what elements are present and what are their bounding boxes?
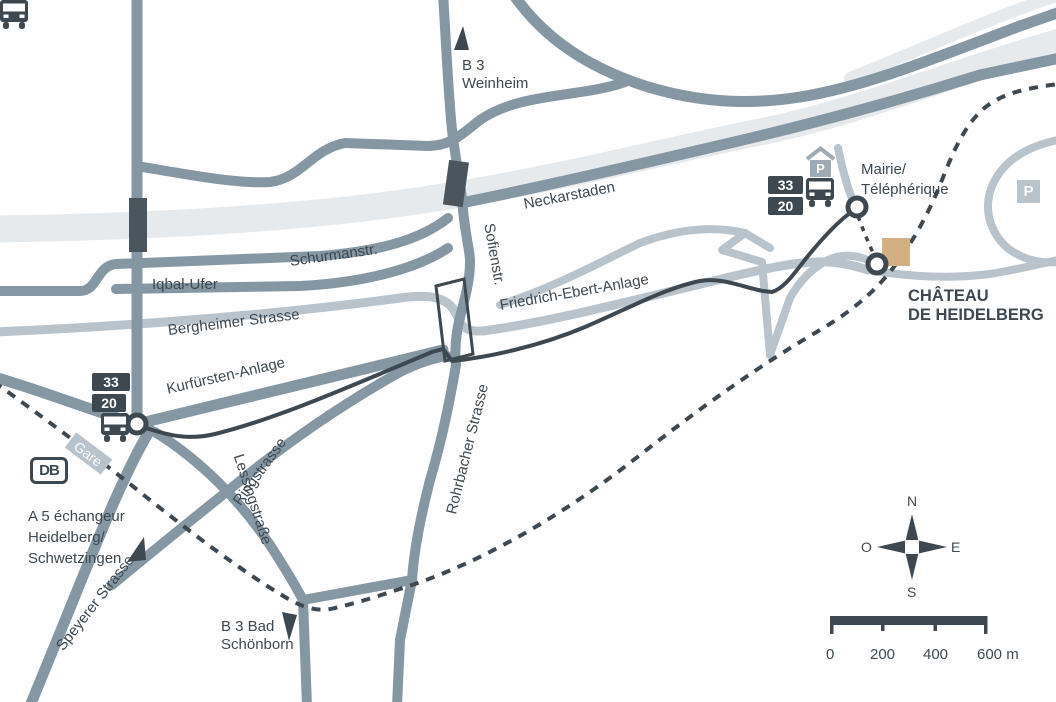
poi-chateau-line1: CHÂTEAU <box>908 287 1044 306</box>
scale-label-400: 400 <box>923 646 948 663</box>
poi-label-chateau: CHÂTEAU DE HEIDELBERG <box>908 287 1044 325</box>
bus-line-badge-33-mairie: 33 <box>768 176 803 194</box>
road-rohrbacher <box>397 365 456 702</box>
scale-bar <box>825 614 995 639</box>
roadsign-b3-weinheim-line1: B 3 <box>462 57 528 75</box>
scale-label-0: 0 <box>826 646 834 663</box>
roadsign-a5-line2: Heidelberg/ <box>28 527 125 548</box>
bus-line-badge-33-gare: 33 <box>92 373 130 391</box>
roadsign-a5-line3: Schwetzingen <box>28 548 125 569</box>
road-bergheimer-friedrich-ebert <box>0 262 868 332</box>
road-mairie-access <box>838 148 854 203</box>
bus-line-badge-20-mairie: 20 <box>768 197 803 215</box>
heidelberg-access-map: Iqbal-Ufer Schurmanstr. Bergheimer Stras… <box>0 0 1056 702</box>
poi-label-mairie-telepherique: Mairie/ Téléphérique <box>861 160 949 200</box>
db-logo: DB <box>30 457 68 484</box>
roadsign-a5-echangeur: A 5 échangeur Heidelberg/ Schwetzingen <box>28 506 125 569</box>
poi-mairie-line2: Téléphérique <box>861 180 949 200</box>
roadsign-a5-line1: A 5 échangeur <box>28 506 125 527</box>
bus-icon <box>0 0 28 29</box>
compass-north-label: N <box>907 493 917 509</box>
bridge-west <box>129 198 147 252</box>
parking-east-icon: P <box>1017 180 1040 203</box>
bus-icon-gare <box>101 413 129 442</box>
parking-garage-letter: P <box>810 160 831 177</box>
scale-label-600: 600 m <box>977 646 1019 663</box>
bus-stop-gare-marker <box>128 415 146 433</box>
road-schloss-switchback <box>722 233 872 355</box>
compass-rose-icon <box>862 497 962 597</box>
roadsign-b3-bad-schoenborn: B 3 Bad Schönborn <box>221 618 294 654</box>
telepherique-dashed-line <box>858 216 874 255</box>
compass-east-label: E <box>951 539 960 555</box>
chateau-station-marker <box>868 255 886 273</box>
compass-south-label: S <box>907 584 916 600</box>
street-label-iqbal-ufer: Iqbal-Ufer <box>152 276 218 294</box>
roadsign-b3-weinheim-line2: Weinheim <box>462 75 528 93</box>
bus-line-badge-20-gare: 20 <box>92 394 126 412</box>
bus-stop-mairie-marker <box>848 198 866 216</box>
parking-garage-roof-icon <box>807 149 834 160</box>
roadsign-b3-bad-schoenborn-line1: B 3 Bad <box>221 618 294 636</box>
scale-label-200: 200 <box>870 646 895 663</box>
poi-mairie-line1: Mairie/ <box>861 160 949 180</box>
bus-icon-mairie <box>806 178 834 207</box>
road-lessingstrasse <box>155 432 307 702</box>
compass-west-label: O <box>861 539 872 555</box>
arrow-b3-north-icon <box>454 26 469 50</box>
poi-chateau-line2: DE HEIDELBERG <box>908 306 1044 325</box>
roadsign-b3-weinheim: B 3 Weinheim <box>462 57 528 93</box>
roadsign-b3-bad-schoenborn-line2: Schönborn <box>221 636 294 654</box>
